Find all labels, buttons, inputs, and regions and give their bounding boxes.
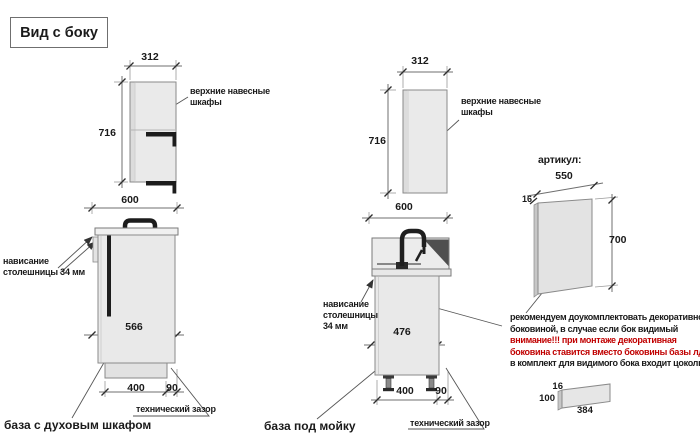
dim-oven-400: 400 (116, 382, 156, 394)
caption-sink-base: база под мойку (264, 419, 356, 433)
label-gap-left: технический зазор (136, 404, 216, 414)
dim-sink-front: 476 (382, 326, 422, 338)
label-overhang-left-1: нависание (3, 256, 49, 266)
sink-base-shape (372, 231, 451, 391)
note-line-1: рекомендуем доукомплектовать декоративно… (510, 312, 700, 322)
dim-oven-width: 600 (110, 194, 150, 206)
label-gap-mid: технический зазор (410, 418, 490, 428)
gola-profile-mid (146, 132, 176, 137)
dim-oven-front: 566 (114, 321, 154, 333)
upper-cabinet-mid-shape (403, 90, 447, 193)
decor-panel-shape (534, 199, 592, 297)
gola-profile-bottom (146, 181, 176, 186)
oven-base-shape (93, 221, 178, 379)
countertop-mid (372, 269, 451, 276)
note-line-3-warning: внимание!!! при монтаже декоративная (510, 335, 677, 345)
dim-mid-upper-height: 716 (360, 135, 386, 147)
title-box: Вид с боку (10, 17, 108, 48)
label-left-upper-2: шкафы (190, 97, 222, 107)
label-left-upper-1: верхние навесные (190, 86, 270, 96)
label-overhang-mid-3: 34 мм (323, 321, 348, 331)
oven-door-edge (107, 236, 111, 317)
dim-panel-height: 700 (609, 234, 627, 246)
dim-plinth-thickness: 16 (549, 381, 563, 392)
label-mid-upper-2: шкафы (461, 107, 493, 117)
note-line-2: боковиной, в случае если бок видимый (510, 324, 678, 334)
caption-oven-base: база с духовым шкафом (4, 418, 151, 432)
dim-left-upper-width: 312 (130, 51, 170, 63)
label-overhang-mid-2: столешницы (323, 310, 378, 320)
dim-panel-width: 550 (544, 170, 584, 182)
note-line-5: в комплект для видимого бока входит цоко… (510, 358, 700, 368)
dim-mid-upper-width: 312 (400, 55, 440, 67)
countertop-left (95, 228, 178, 235)
drawing-linework (0, 0, 700, 438)
note-line-4-warning: боковина ставится вместо боковины базы л… (510, 347, 700, 357)
page-title: Вид с боку (20, 25, 98, 41)
dim-plinth-height: 100 (535, 393, 555, 404)
dim-oven-90: 90 (160, 382, 184, 394)
dim-panel-thickness: 16 (522, 194, 532, 204)
label-overhang-mid-1: нависание (323, 299, 369, 309)
dim-left-upper-height: 716 (88, 127, 116, 139)
label-mid-upper-1: верхние навесные (461, 96, 541, 106)
label-artikul: артикул: (538, 154, 581, 166)
dim-sink-width: 600 (384, 201, 424, 213)
dim-plinth-length: 384 (577, 405, 593, 416)
dim-sink-90: 90 (429, 385, 453, 397)
dim-sink-400: 400 (385, 385, 425, 397)
plinth-left (105, 363, 167, 378)
label-overhang-left-2: столешницы 34 мм (3, 267, 85, 277)
technical-drawing: Вид с боку 312 716 верхние навесные шкаф… (0, 0, 700, 438)
upper-cabinet-left-shape (130, 82, 176, 194)
